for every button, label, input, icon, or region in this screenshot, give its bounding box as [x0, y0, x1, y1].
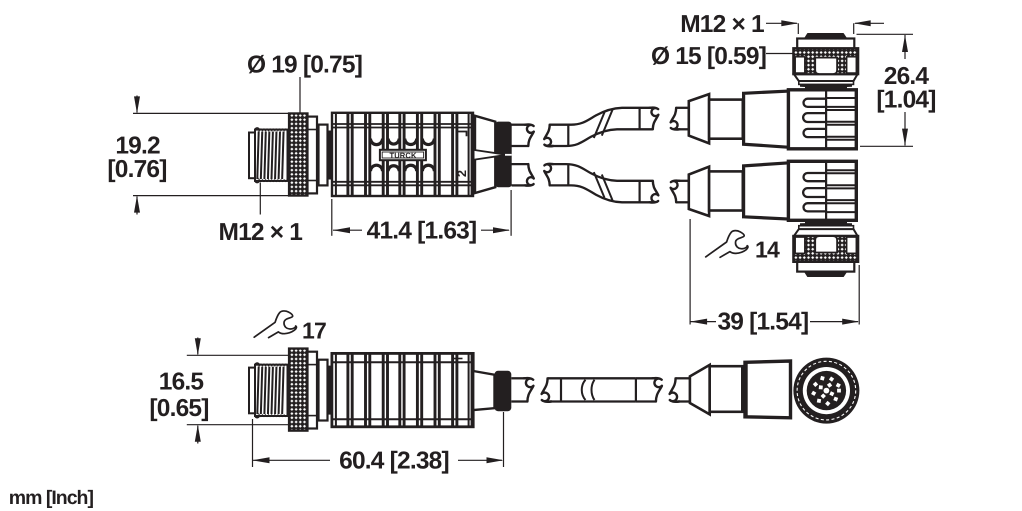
svg-text:17: 17 [302, 318, 326, 344]
svg-text:2: 2 [455, 170, 469, 177]
svg-text:[0.76]: [0.76] [107, 156, 166, 183]
svg-text:mm [Inch]: mm [Inch] [9, 487, 94, 509]
svg-text:60.4 [2.38]: 60.4 [2.38] [339, 448, 449, 475]
svg-text:M12 × 1: M12 × 1 [218, 219, 302, 246]
svg-text:14: 14 [755, 237, 780, 263]
svg-text:M12 × 1: M12 × 1 [680, 11, 764, 38]
svg-text:16.5: 16.5 [159, 369, 204, 396]
svg-text:[1.04]: [1.04] [876, 87, 935, 114]
svg-text:Ø 19 [0.75]: Ø 19 [0.75] [247, 52, 362, 79]
svg-text:Ø 15 [0.59]: Ø 15 [0.59] [651, 43, 766, 70]
svg-text:39 [1.54]: 39 [1.54] [717, 309, 808, 336]
svg-text:[0.65]: [0.65] [149, 395, 208, 422]
svg-text:41.4 [1.63]: 41.4 [1.63] [367, 218, 477, 245]
svg-text:TURCK: TURCK [389, 151, 416, 160]
